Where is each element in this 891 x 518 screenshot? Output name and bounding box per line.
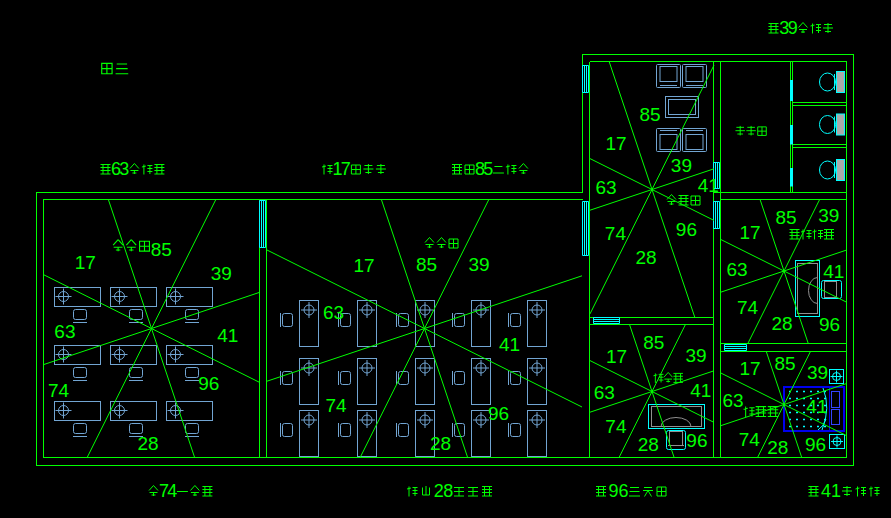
svg-text:1: 1: [831, 481, 841, 501]
svg-text:74: 74: [48, 380, 70, 401]
svg-text:39: 39: [671, 155, 692, 176]
svg-text:63: 63: [726, 259, 747, 280]
svg-text:28: 28: [137, 433, 158, 454]
svg-text:4: 4: [821, 481, 831, 501]
svg-text:9: 9: [788, 18, 798, 38]
svg-text:17: 17: [75, 252, 96, 273]
svg-text:41: 41: [698, 175, 719, 196]
svg-text:41: 41: [217, 325, 238, 346]
svg-text:17: 17: [353, 255, 374, 276]
svg-text:85: 85: [639, 104, 660, 125]
svg-text:4: 4: [167, 481, 177, 501]
svg-text:17: 17: [606, 346, 627, 367]
svg-text:74: 74: [739, 429, 761, 450]
svg-text:85: 85: [643, 332, 664, 353]
svg-text:28: 28: [638, 434, 659, 455]
svg-text:39: 39: [818, 205, 839, 226]
svg-text:9: 9: [608, 481, 618, 501]
svg-text:74: 74: [325, 395, 347, 416]
svg-text:74: 74: [605, 416, 627, 437]
svg-text:96: 96: [198, 373, 219, 394]
svg-text:96: 96: [819, 314, 840, 335]
svg-text:85: 85: [775, 207, 796, 228]
svg-text:17: 17: [739, 358, 760, 379]
svg-text:96: 96: [488, 403, 509, 424]
svg-text:63: 63: [723, 390, 744, 411]
svg-text:39: 39: [686, 345, 707, 366]
svg-text:3: 3: [119, 159, 129, 179]
svg-text:17: 17: [739, 222, 760, 243]
svg-text:28: 28: [767, 437, 788, 458]
svg-text:85: 85: [151, 239, 172, 260]
svg-text:28: 28: [771, 313, 792, 334]
svg-text:28: 28: [430, 433, 451, 454]
svg-text:41: 41: [690, 380, 711, 401]
svg-text:74: 74: [737, 297, 759, 318]
svg-text:8: 8: [443, 481, 453, 501]
svg-text:63: 63: [595, 177, 616, 198]
svg-text:39: 39: [211, 263, 232, 284]
svg-text:41: 41: [806, 396, 827, 417]
svg-text:85: 85: [416, 254, 437, 275]
svg-text:41: 41: [823, 261, 844, 282]
svg-text:74: 74: [605, 223, 627, 244]
svg-text:39: 39: [807, 362, 828, 383]
svg-text:17: 17: [605, 133, 626, 154]
svg-text:28: 28: [635, 247, 656, 268]
svg-text:63: 63: [323, 302, 344, 323]
svg-text:85: 85: [775, 353, 796, 374]
svg-text:96: 96: [686, 430, 707, 451]
svg-text:39: 39: [468, 254, 489, 275]
svg-text:5: 5: [483, 159, 493, 179]
svg-text:63: 63: [594, 382, 615, 403]
svg-text:6: 6: [618, 481, 628, 501]
svg-text:96: 96: [676, 219, 697, 240]
svg-text:96: 96: [805, 434, 826, 455]
svg-text:7: 7: [341, 159, 351, 179]
svg-text:63: 63: [54, 321, 75, 342]
svg-text:41: 41: [499, 334, 520, 355]
